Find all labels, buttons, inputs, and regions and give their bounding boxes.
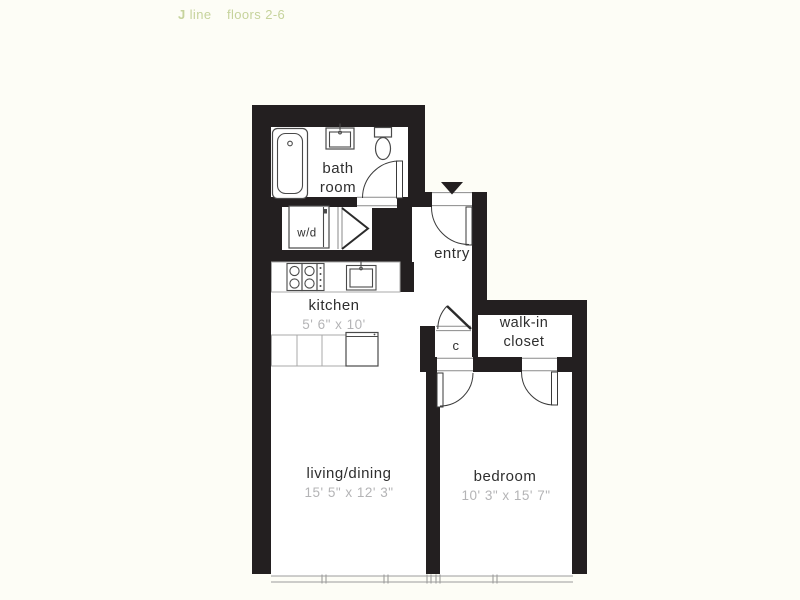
wall-segment	[252, 105, 425, 127]
wall-segment	[271, 250, 412, 262]
wall-segment	[472, 315, 478, 357]
bedroom-label: bedroom	[474, 468, 537, 485]
floorplan-page: Jline floors 2-6	[0, 0, 800, 600]
kitchen-dimensions: 5' 6" x 10'	[302, 317, 365, 332]
wall-segment	[408, 105, 425, 207]
walk-in-label-line1: walk-in	[499, 315, 549, 331]
bathroom-label-line2: room	[320, 179, 356, 196]
kitchen-counter-top	[272, 262, 401, 292]
kitchen-label: kitchen	[308, 297, 359, 314]
entry-label: entry	[434, 245, 470, 262]
wall-segment	[420, 357, 437, 372]
living-dining-label: living/dining	[307, 465, 392, 482]
refrigerator-icon	[346, 333, 378, 367]
wall-segment	[400, 262, 414, 292]
wall-segment	[425, 192, 432, 207]
wall-segment	[252, 105, 271, 574]
window-wall	[271, 575, 573, 584]
wall-segment	[472, 192, 487, 302]
walk-in-label-line2: closet	[504, 334, 545, 350]
toilet-icon	[375, 128, 392, 160]
washer-dryer-label: w/d	[296, 228, 316, 240]
wall-segment	[473, 357, 522, 372]
wall-segment	[472, 300, 587, 315]
bedroom-dimensions: 10' 3" x 15' 7"	[461, 488, 550, 503]
bathroom-label-line1: bath	[322, 160, 353, 177]
floor-plan: bath room w/d entry kitchen 5' 6" x 10' …	[0, 0, 800, 600]
closet-label: c	[453, 338, 460, 353]
bathtub-icon	[273, 129, 308, 199]
wall-segment	[372, 205, 412, 250]
wall-segment	[572, 300, 587, 574]
living-dining-dimensions: 15' 5" x 12' 3"	[304, 485, 393, 500]
